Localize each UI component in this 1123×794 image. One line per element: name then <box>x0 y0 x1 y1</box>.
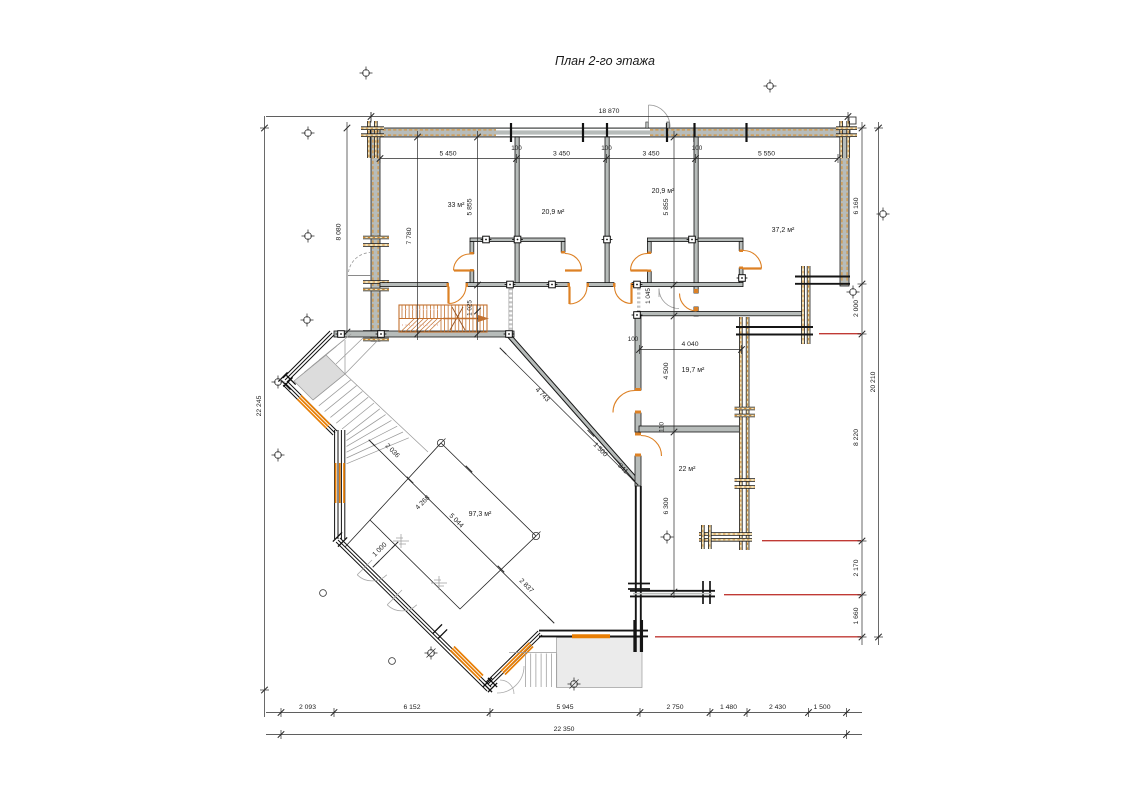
svg-text:1 500: 1 500 <box>813 704 830 711</box>
svg-text:110: 110 <box>659 421 666 432</box>
svg-text:18 870: 18 870 <box>599 108 620 115</box>
svg-text:22 м²: 22 м² <box>679 466 697 473</box>
svg-text:97,3 м²: 97,3 м² <box>469 511 492 518</box>
svg-text:5 855: 5 855 <box>663 198 670 215</box>
svg-text:2 430: 2 430 <box>769 704 786 711</box>
svg-text:22 245: 22 245 <box>256 395 263 416</box>
svg-text:6 152: 6 152 <box>403 704 420 711</box>
svg-text:2 750: 2 750 <box>666 704 683 711</box>
svg-text:20,9 м²: 20,9 м² <box>652 188 675 195</box>
svg-text:2 000: 2 000 <box>853 300 860 317</box>
svg-text:20,9 м²: 20,9 м² <box>542 209 565 216</box>
svg-text:4 500: 4 500 <box>663 362 670 379</box>
svg-text:1 025: 1 025 <box>467 300 474 316</box>
svg-text:3 450: 3 450 <box>553 151 570 158</box>
svg-text:5 550: 5 550 <box>758 151 775 158</box>
svg-text:100: 100 <box>601 145 612 152</box>
svg-text:6 300: 6 300 <box>663 497 670 514</box>
svg-text:20 210: 20 210 <box>870 371 877 392</box>
svg-text:6 160: 6 160 <box>853 197 860 214</box>
svg-text:8 220: 8 220 <box>853 429 860 446</box>
svg-text:19,7 м²: 19,7 м² <box>682 367 705 374</box>
svg-text:22 350: 22 350 <box>554 726 575 733</box>
svg-text:100: 100 <box>511 145 522 152</box>
svg-text:33 м²: 33 м² <box>448 202 466 209</box>
svg-text:5 855: 5 855 <box>467 198 474 215</box>
svg-text:1 480: 1 480 <box>720 704 737 711</box>
svg-text:5 450: 5 450 <box>439 151 456 158</box>
svg-text:3 450: 3 450 <box>642 151 659 158</box>
svg-text:1 660: 1 660 <box>853 607 860 624</box>
svg-text:5 945: 5 945 <box>556 704 573 711</box>
svg-text:План 2-го этажа: План 2-го этажа <box>555 54 655 68</box>
svg-text:1 045: 1 045 <box>645 288 652 304</box>
svg-text:2 093: 2 093 <box>299 704 316 711</box>
svg-text:8 080: 8 080 <box>336 223 343 240</box>
svg-text:7 780: 7 780 <box>406 227 413 244</box>
svg-text:100: 100 <box>628 336 639 343</box>
svg-text:2 170: 2 170 <box>853 559 860 576</box>
svg-text:100: 100 <box>692 145 703 152</box>
svg-text:4 040: 4 040 <box>681 341 698 348</box>
svg-text:37,2 м²: 37,2 м² <box>772 227 795 234</box>
